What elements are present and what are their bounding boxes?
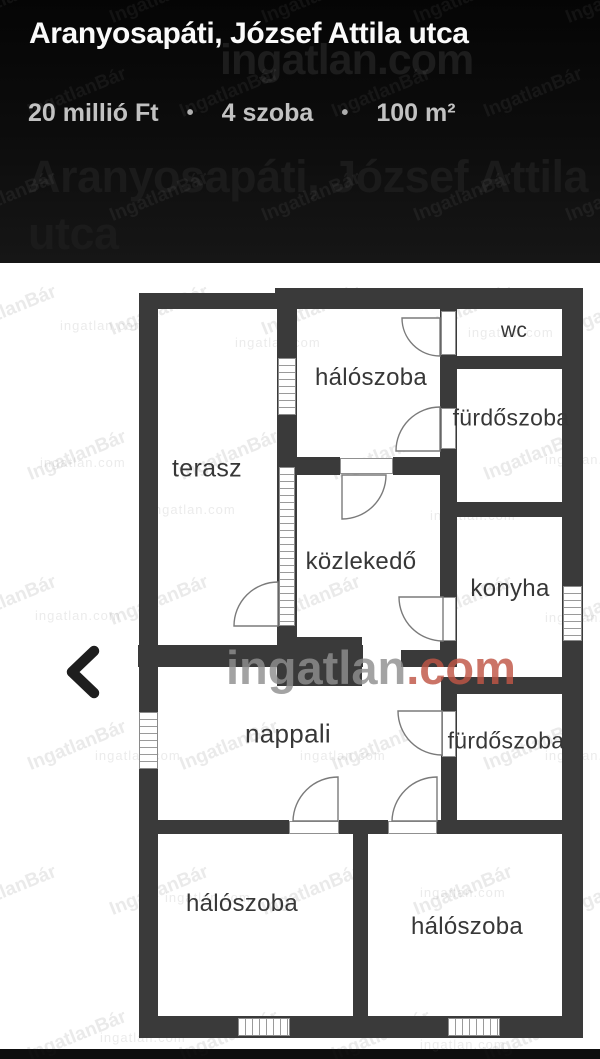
separator-dot: • <box>341 102 348 125</box>
wall <box>275 288 583 309</box>
door-opening <box>340 458 393 474</box>
listing-summary: 20 millió Ft • 4 szoba • 100 m² <box>28 99 456 128</box>
room-label-wc: wc <box>501 319 527 343</box>
room-count-label: 4 szoba <box>222 99 314 128</box>
wall <box>353 834 368 1016</box>
window-symbol <box>238 1018 290 1036</box>
previous-photo-button[interactable] <box>52 634 108 710</box>
diagonal-watermark: IngatlanBár <box>563 0 600 29</box>
wall <box>139 293 158 1038</box>
window-symbol <box>563 586 582 641</box>
window-symbol <box>139 712 158 769</box>
wall <box>339 820 388 834</box>
room-label-hálószoba: hálószoba <box>315 364 427 392</box>
window-symbol <box>448 1018 500 1036</box>
wall <box>143 1016 583 1038</box>
brand-watermark: ingatlan.com <box>226 640 516 695</box>
listing-photo-page: { "header": { "title": "Aranyosapáti, Jó… <box>0 0 600 1059</box>
listing-header: ingatlan.com Aranyosapáti, József Attila… <box>0 0 600 263</box>
bottom-bar <box>0 1049 600 1059</box>
separator-dot: • <box>187 102 194 125</box>
room-label-hálószoba: hálószoba <box>186 890 298 918</box>
ghost-page-title: Aranyosapáti, József Attila utca <box>28 148 600 262</box>
room-label-közlekedő: közlekedő <box>306 548 417 576</box>
room-label-konyha: konyha <box>470 575 549 603</box>
room-label-terasz: terasz <box>172 455 242 484</box>
diagonal-watermark: IngatlanBár <box>481 63 586 123</box>
room-label-hálószoba: hálószoba <box>411 913 523 941</box>
room-label-fürdőszoba: fürdőszoba <box>453 405 570 432</box>
door-opening <box>441 311 456 355</box>
window-symbol <box>278 358 296 415</box>
room-label-fürdőszoba: fürdőszoba <box>448 728 565 755</box>
wall <box>143 293 277 309</box>
chevron-left-icon <box>58 643 102 701</box>
wall <box>143 820 289 834</box>
room-label-nappali: nappali <box>245 719 331 750</box>
page-title: Aranyosapáti, József Attila utca <box>29 17 469 51</box>
door-opening <box>289 821 339 834</box>
area-label: 100 m² <box>376 99 455 128</box>
price-label: 20 millió Ft <box>28 99 159 128</box>
window-symbol <box>279 467 295 626</box>
wall <box>562 289 583 1038</box>
door-opening <box>442 597 456 641</box>
door-opening <box>388 821 437 834</box>
